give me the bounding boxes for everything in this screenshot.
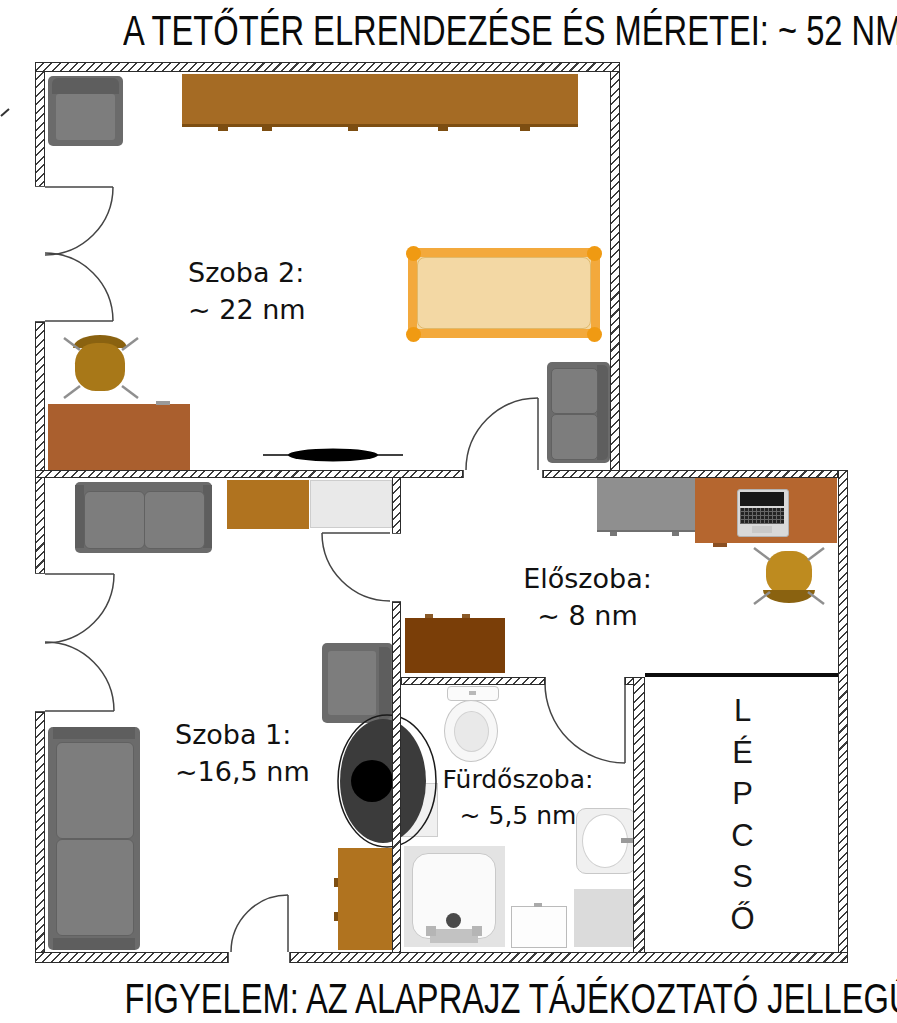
wall-mid-right	[543, 470, 838, 478]
wardrobe-handle	[438, 127, 448, 131]
desk-chair	[64, 330, 136, 398]
plan-footer: FIGYELEM: AZ ALAPRAJZ TÁJÉKOZTATÓ JELLEG…	[0, 974, 897, 1023]
sofa-cushion	[56, 839, 134, 936]
sofa-cushion	[84, 491, 145, 549]
bed-post	[587, 327, 602, 342]
bed-post	[406, 246, 421, 261]
cabinet-handle	[334, 912, 338, 921]
wall-left	[35, 322, 45, 574]
loveseat	[547, 362, 610, 463]
wardrobe-handle	[218, 127, 228, 131]
door-eloszoba-furdoszoba	[545, 683, 625, 763]
sofa-large	[48, 727, 140, 950]
office-chair-seat	[766, 551, 812, 595]
lepcso-letter: É	[732, 732, 753, 774]
lepcso-letter: C	[731, 815, 753, 857]
wardrobe-handle	[262, 127, 272, 131]
stray-mark	[1, 109, 9, 116]
shower-drain	[446, 913, 461, 928]
chest	[405, 618, 505, 673]
laptop-trackpad	[752, 526, 772, 533]
door-opening	[545, 677, 625, 685]
wall-bathroom-top	[401, 677, 545, 685]
room-name: Szoba 2:	[188, 254, 306, 291]
room-name: Fürdőszoba:	[424, 762, 612, 798]
door-opening	[35, 573, 45, 712]
wardrobe	[182, 74, 578, 127]
room-name: Szoba 1:	[175, 716, 310, 753]
sofa-cushion	[56, 742, 134, 839]
bathroom-cabinet	[511, 906, 567, 948]
door-szoba1-exit	[231, 895, 288, 952]
laptop-icon	[737, 489, 789, 537]
desk-chair-seat	[75, 343, 125, 391]
label-lepcso: L É P C S Ő	[647, 690, 838, 939]
chest-handle	[425, 614, 433, 618]
shower-fixture-knob	[472, 926, 482, 936]
shower	[404, 846, 505, 947]
wall-staircase-left	[633, 677, 645, 953]
room-size: ~ 5,5 nm	[424, 798, 612, 834]
wall-right	[838, 470, 848, 953]
toilet-button	[469, 691, 476, 695]
wall-szoba1-right-upper	[392, 477, 401, 534]
armchair	[48, 76, 123, 146]
label-szoba1: Szoba 1: ~16,5 nm	[175, 716, 310, 790]
room-size: ~ 8 nm	[505, 597, 670, 634]
cabinet	[338, 848, 392, 950]
armchair-back	[379, 647, 391, 719]
closet	[310, 480, 392, 528]
office-chair-back	[763, 590, 815, 603]
sideboard-foot	[672, 532, 679, 536]
tv-lens-szoba2	[263, 449, 403, 462]
lepcso-letter: L	[734, 690, 751, 732]
shower-fixture	[430, 929, 478, 943]
shower-fixture-knob	[426, 926, 436, 936]
sofa-cushion	[144, 491, 205, 549]
wall-bottom-left	[35, 952, 228, 963]
laptop-screen	[740, 492, 784, 506]
wall-top	[35, 62, 620, 72]
computer-desk	[695, 478, 837, 543]
door-opening	[463, 470, 543, 478]
door-opening	[35, 186, 45, 322]
desk	[48, 404, 190, 470]
desk-handle	[156, 401, 170, 405]
plan-title: A TETŐTÉR ELRENDEZÉSE ÉS MÉRETEI: ~ 52 N…	[0, 6, 897, 55]
desk-handle	[713, 543, 727, 547]
door-szoba2-eloszoba	[466, 398, 538, 470]
double-door-szoba2	[45, 187, 113, 321]
wall-left	[35, 71, 45, 187]
sideboard-foot	[610, 532, 617, 536]
wall-left	[35, 712, 45, 953]
office-chair	[756, 544, 822, 608]
room-size: ~ 22 nm	[188, 291, 306, 328]
wall-szoba1-right-lower	[392, 602, 401, 953]
door-eloszoba-szoba1	[322, 533, 390, 601]
room-name: Előszoba:	[505, 560, 670, 597]
staircase-edge-line	[645, 673, 838, 677]
loveseat-back	[597, 365, 608, 460]
label-furdoszoba: Fürdőszoba: ~ 5,5 nm	[424, 762, 612, 834]
lepcso-letter: S	[732, 856, 753, 898]
armchair-seat	[328, 651, 376, 715]
double-door-szoba1	[45, 574, 114, 711]
wall-bottom-right	[290, 952, 848, 963]
lepcso-letter: Ő	[730, 898, 754, 940]
sofa-two-seat	[75, 482, 212, 553]
loveseat-cushion	[551, 368, 598, 414]
label-eloszoba: Előszoba: ~ 8 nm	[505, 560, 670, 634]
double-bed	[408, 248, 600, 338]
door-opening	[228, 952, 290, 963]
door-opening	[392, 533, 401, 602]
loveseat-cushion	[551, 414, 598, 460]
mattress	[417, 257, 591, 329]
wall-szoba2-right	[610, 71, 620, 471]
chest-handle	[462, 614, 470, 618]
laptop-keyboard	[740, 508, 784, 524]
armchair	[322, 643, 393, 723]
wardrobe-handle	[348, 127, 358, 131]
toilet-bowl	[444, 700, 498, 762]
floor-plan-page: A TETŐTÉR ELRENDEZÉSE ÉS MÉRETEI: ~ 52 N…	[0, 0, 897, 1023]
cabinet	[227, 480, 309, 529]
toilet-bowl-inner	[454, 711, 489, 752]
armchair-seat	[56, 94, 115, 140]
bathroom-unit	[574, 889, 635, 947]
bed-post	[587, 246, 602, 261]
lepcso-letter: P	[732, 773, 753, 815]
bed-post	[406, 327, 421, 342]
cabinet-handle	[334, 878, 338, 887]
sideboard	[597, 478, 695, 532]
wardrobe-handle	[520, 127, 530, 131]
sofa-armrest	[53, 938, 135, 950]
bathroom-cabinet-handle	[534, 903, 542, 907]
sofa-armrest	[53, 727, 135, 739]
sofa-armrest	[75, 485, 84, 548]
armchair-back	[52, 78, 119, 94]
label-szoba2: Szoba 2: ~ 22 nm	[188, 254, 306, 328]
room-size: ~16,5 nm	[175, 753, 310, 790]
